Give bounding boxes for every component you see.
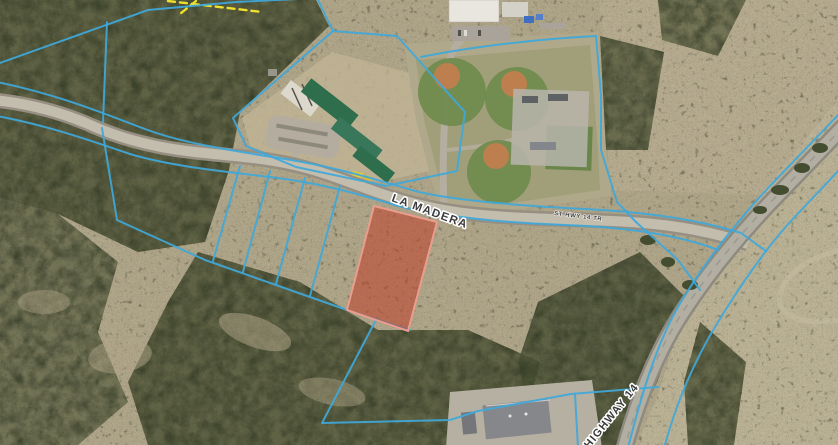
baseball-infield — [434, 63, 460, 89]
concession-building — [530, 142, 556, 150]
car-dot — [478, 30, 481, 36]
tree-cluster — [771, 185, 789, 195]
shade-structure — [524, 16, 534, 23]
building — [502, 2, 528, 17]
tree-cluster — [812, 143, 828, 153]
shade-structure — [536, 14, 543, 20]
outbuilding — [268, 69, 277, 76]
car-dot — [458, 30, 461, 36]
bleachers — [548, 94, 568, 101]
gym-building — [449, 0, 499, 22]
map-canvas[interactable]: LA MADERA HIGHWAY 14 ST HWY 14 TR — [0, 0, 838, 445]
car-dot — [464, 30, 467, 36]
roof-vent — [509, 415, 512, 418]
parking-strip — [540, 23, 566, 29]
bleachers — [522, 96, 538, 103]
tree-cluster — [640, 235, 656, 245]
aerial-map[interactable]: LA MADERA HIGHWAY 14 ST HWY 14 TR — [0, 0, 838, 445]
tree-cluster — [753, 206, 767, 214]
tree-cluster — [794, 163, 810, 173]
baseball-infield — [483, 143, 509, 169]
tree-cluster — [661, 257, 675, 267]
roof-vent — [525, 413, 528, 416]
